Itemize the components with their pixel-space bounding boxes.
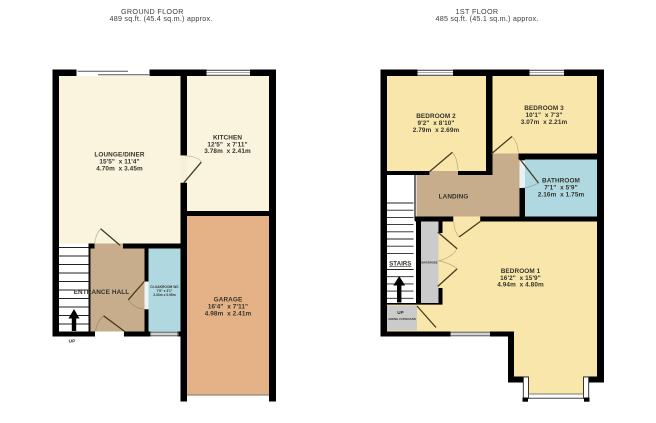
svg-text:2.16m x 1.75m: 2.16m x 1.75m — [538, 192, 585, 199]
svg-text:LANDING: LANDING — [439, 194, 469, 201]
svg-text:4.94m x 4.80m: 4.94m x 4.80m — [497, 282, 544, 289]
svg-text:489 sq.ft. (45.4 sq.m.) approx: 489 sq.ft. (45.4 sq.m.) approx. — [109, 14, 212, 23]
svg-text:STAIRS: STAIRS — [389, 260, 411, 267]
svg-text:AIRING CUPBOARD: AIRING CUPBOARD — [388, 317, 416, 321]
svg-text:UP: UP — [69, 339, 76, 345]
svg-text:485 sq.ft. (45.1 sq.m.) approx: 485 sq.ft. (45.1 sq.m.) approx. — [435, 14, 538, 23]
svg-text:3.07m x 2.21m: 3.07m x 2.21m — [521, 119, 568, 126]
svg-text:3.78m x 2.41m: 3.78m x 2.41m — [204, 148, 251, 155]
svg-text:ENTRANCE HALL: ENTRANCE HALL — [74, 289, 130, 296]
svg-text:2.79m x 2.69m: 2.79m x 2.69m — [413, 127, 460, 134]
svg-text:UP: UP — [397, 310, 403, 315]
svg-text:WARDROBE: WARDROBE — [421, 261, 438, 265]
svg-text:4.98m x 2.41m: 4.98m x 2.41m — [205, 310, 252, 317]
svg-text:4.70m x 3.45m: 4.70m x 3.45m — [96, 165, 143, 172]
svg-text:2.33m x 0.95m: 2.33m x 0.95m — [153, 293, 175, 297]
